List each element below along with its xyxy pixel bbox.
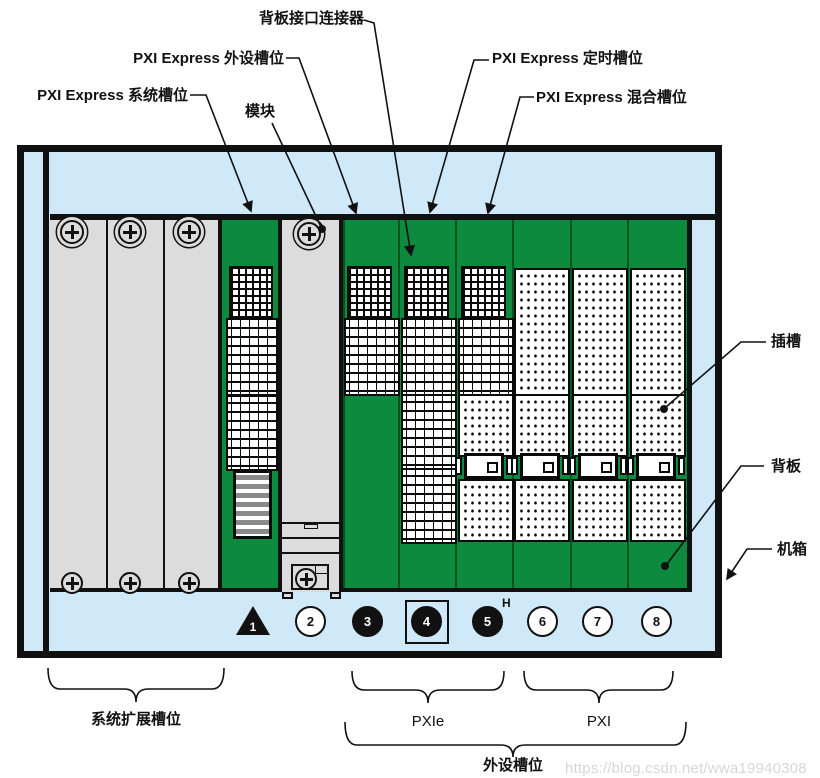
connector-tab (455, 457, 462, 475)
pxi-connector (630, 268, 686, 396)
slot-marker-7: 7 (582, 606, 613, 637)
key-connector (511, 453, 569, 479)
slot-number: 3 (364, 614, 371, 629)
label-module: 模块 (245, 103, 275, 120)
slot-marker-3: 3 (352, 606, 383, 637)
module-latch-tab (304, 524, 318, 529)
key-connector (627, 453, 685, 479)
watermark: https://blog.csdn.net/wwa19940308 (565, 760, 807, 777)
screw-icon (295, 568, 317, 590)
callout-line-chassis (727, 549, 772, 579)
connector-tab (627, 457, 634, 475)
connector-tab (569, 457, 576, 475)
slot-marker-1: 1 (236, 606, 270, 635)
slot-number: 8 (653, 614, 660, 629)
module-panel-line (282, 537, 339, 539)
grid-connector (229, 266, 273, 320)
high-density-connector (344, 318, 400, 396)
hybrid-superscript: H (502, 596, 511, 610)
slot-marker-8: 8 (641, 606, 672, 637)
pxi-connector (514, 268, 570, 396)
pxi-connector (572, 268, 628, 396)
card-edge-connector (233, 470, 272, 539)
label-hybrid-slot: PXI Express 混合槽位 (536, 89, 687, 106)
pxi-connector (458, 394, 514, 457)
screw-icon (297, 222, 321, 246)
chassis-inner-wall (43, 152, 49, 652)
connector-key (636, 453, 676, 479)
pxi-connector (630, 479, 686, 542)
slot-number: 4 (423, 614, 430, 629)
slot-number: 6 (539, 614, 546, 629)
module-foot (330, 592, 341, 599)
label-chassis: 机箱 (777, 541, 807, 558)
connector-key (464, 453, 504, 479)
card-cage-bottom-rail (50, 588, 692, 592)
pxi-connector (630, 394, 686, 457)
label-slot: 插槽 (771, 333, 801, 350)
label-system-expansion-slots: 系统扩展槽位 (58, 711, 214, 728)
connector-tab (562, 457, 569, 475)
label-peripheral-slot: PXI Express 外设槽位 (126, 50, 284, 67)
slot-number: 7 (594, 614, 601, 629)
label-backplane: 背板 (771, 458, 801, 475)
connector-tab (678, 457, 685, 475)
brace-peripheral (345, 722, 686, 757)
brace-pxi (524, 671, 673, 703)
slot-number: 1 (236, 620, 270, 634)
key-connector (455, 453, 513, 479)
screw-icon (118, 220, 142, 244)
panel-divider (163, 220, 165, 588)
grid-connector (461, 266, 506, 320)
label-backplane-connector: 背板接口连接器 (230, 10, 364, 27)
slot-marker-2: 2 (295, 606, 326, 637)
slot-divider (398, 220, 400, 592)
brace-system-expansion (48, 668, 224, 702)
pxi-connector (514, 394, 570, 457)
module-panel-line (282, 552, 339, 554)
module-ejector (291, 564, 329, 590)
brace-pxie (352, 671, 504, 703)
high-density-connector (401, 468, 457, 544)
high-density-connector (226, 395, 278, 471)
screw-icon (61, 572, 83, 594)
connector-key (520, 453, 560, 479)
label-pxi-group: PXI (569, 713, 629, 730)
high-density-connector (401, 394, 457, 470)
pxi-chassis-diagram: 1 2 3 4 5 H 6 7 8 背板接口连接器 PXI Express 外设… (0, 0, 820, 778)
grid-connector (404, 266, 449, 320)
connector-key (578, 453, 618, 479)
screw-icon (178, 572, 200, 594)
slot-divider (343, 220, 345, 592)
slot-marker-4: 4 (411, 606, 442, 637)
screw-icon (60, 220, 84, 244)
pxi-connector (572, 394, 628, 457)
slot-number: 5 (484, 614, 491, 629)
high-density-connector (458, 318, 514, 396)
ejector-notch (315, 565, 328, 574)
pxi-connector (572, 479, 628, 542)
installed-module (278, 220, 343, 592)
filler-panels (50, 220, 218, 588)
label-pxie-group: PXIe (398, 713, 458, 730)
grid-connector (347, 266, 392, 320)
module-foot (282, 592, 293, 599)
connector-tab (620, 457, 627, 475)
high-density-connector (401, 318, 457, 396)
backplane-right-border (687, 220, 692, 592)
label-peripheral-slots-group: 外设槽位 (453, 757, 573, 774)
pxi-connector (458, 479, 514, 542)
high-density-connector (226, 318, 278, 396)
screw-icon (177, 220, 201, 244)
slot-marker-6: 6 (527, 606, 558, 637)
label-timing-slot: PXI Express 定时槽位 (492, 50, 643, 67)
label-system-slot: PXI Express 系统槽位 (36, 87, 188, 104)
pxi-connector (514, 479, 570, 542)
panel-divider (106, 220, 108, 588)
connector-tab (511, 457, 518, 475)
slot-marker-5: 5 (472, 606, 503, 637)
screw-icon (119, 572, 141, 594)
slot-number: 2 (307, 614, 314, 629)
key-connector (569, 453, 627, 479)
